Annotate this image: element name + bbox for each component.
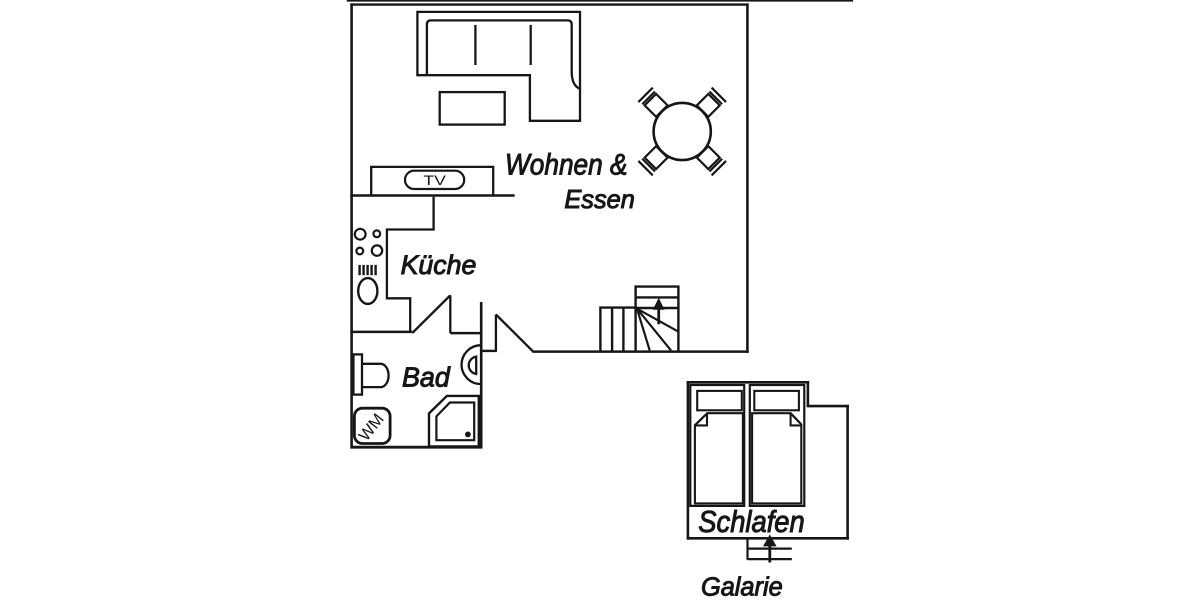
svg-text:Schlafen: Schlafen (698, 506, 804, 539)
svg-text:Essen: Essen (564, 184, 635, 214)
svg-text:Wohnen &: Wohnen & (505, 149, 628, 182)
svg-text:Bad: Bad (402, 362, 451, 393)
svg-text:Galarie: Galarie (701, 571, 783, 600)
svg-text:Küche: Küche (401, 249, 477, 280)
svg-text:TV: TV (423, 172, 446, 188)
